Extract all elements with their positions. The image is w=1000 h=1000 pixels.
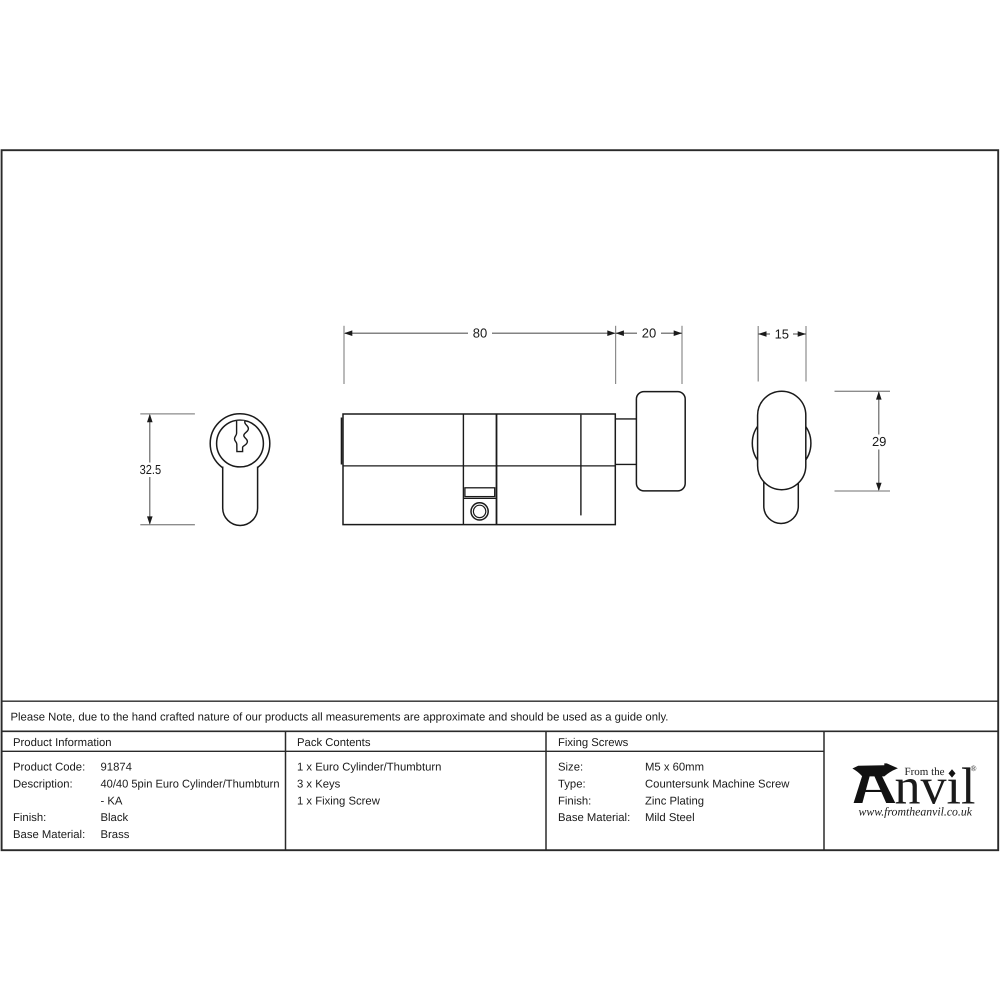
svg-text:Finish:: Finish:: [558, 796, 591, 808]
svg-text:- KA: - KA: [101, 796, 123, 808]
svg-text:Pack Contents: Pack Contents: [297, 737, 371, 749]
svg-text:40/40 5pin Euro Cylinder/Thumb: 40/40 5pin Euro Cylinder/Thumbturn: [101, 779, 280, 791]
svg-text:3 x Keys: 3 x Keys: [297, 779, 341, 791]
svg-text:29: 29: [872, 434, 886, 449]
svg-text:www.fromtheanvil.co.uk: www.fromtheanvil.co.uk: [859, 805, 973, 819]
svg-text:Finish:: Finish:: [13, 812, 46, 824]
svg-text:M5 x 60mm: M5 x 60mm: [645, 761, 704, 773]
svg-text:Base Material:: Base Material:: [13, 829, 85, 841]
svg-text:Black: Black: [101, 812, 129, 824]
svg-text:Type:: Type:: [558, 779, 586, 791]
svg-text:Countersunk Machine Screw: Countersunk Machine Screw: [645, 779, 790, 791]
svg-text:Fixing Screws: Fixing Screws: [558, 737, 629, 749]
svg-text:Base Material:: Base Material:: [558, 812, 630, 824]
svg-text:Size:: Size:: [558, 761, 583, 773]
svg-text:Mild Steel: Mild Steel: [645, 812, 695, 824]
svg-text:1 x Euro Cylinder/Thumbturn: 1 x Euro Cylinder/Thumbturn: [297, 761, 441, 773]
svg-text:91874: 91874: [101, 761, 132, 773]
svg-text:®: ®: [971, 764, 977, 773]
svg-text:80: 80: [473, 326, 487, 341]
svg-text:From the: From the: [905, 766, 945, 778]
svg-text:20: 20: [642, 326, 656, 341]
svg-text:1 x Fixing Screw: 1 x Fixing Screw: [297, 796, 381, 808]
svg-text:Product Code:: Product Code:: [13, 761, 85, 773]
svg-text:Product Information: Product Information: [13, 737, 112, 749]
svg-text:Zinc Plating: Zinc Plating: [645, 796, 704, 808]
svg-text:Brass: Brass: [101, 829, 130, 841]
svg-text:Description:: Description:: [13, 779, 73, 791]
svg-text:32.5: 32.5: [140, 462, 162, 477]
svg-text:Please Note, due to the hand c: Please Note, due to the hand crafted nat…: [11, 712, 669, 724]
svg-text:15: 15: [775, 326, 789, 341]
